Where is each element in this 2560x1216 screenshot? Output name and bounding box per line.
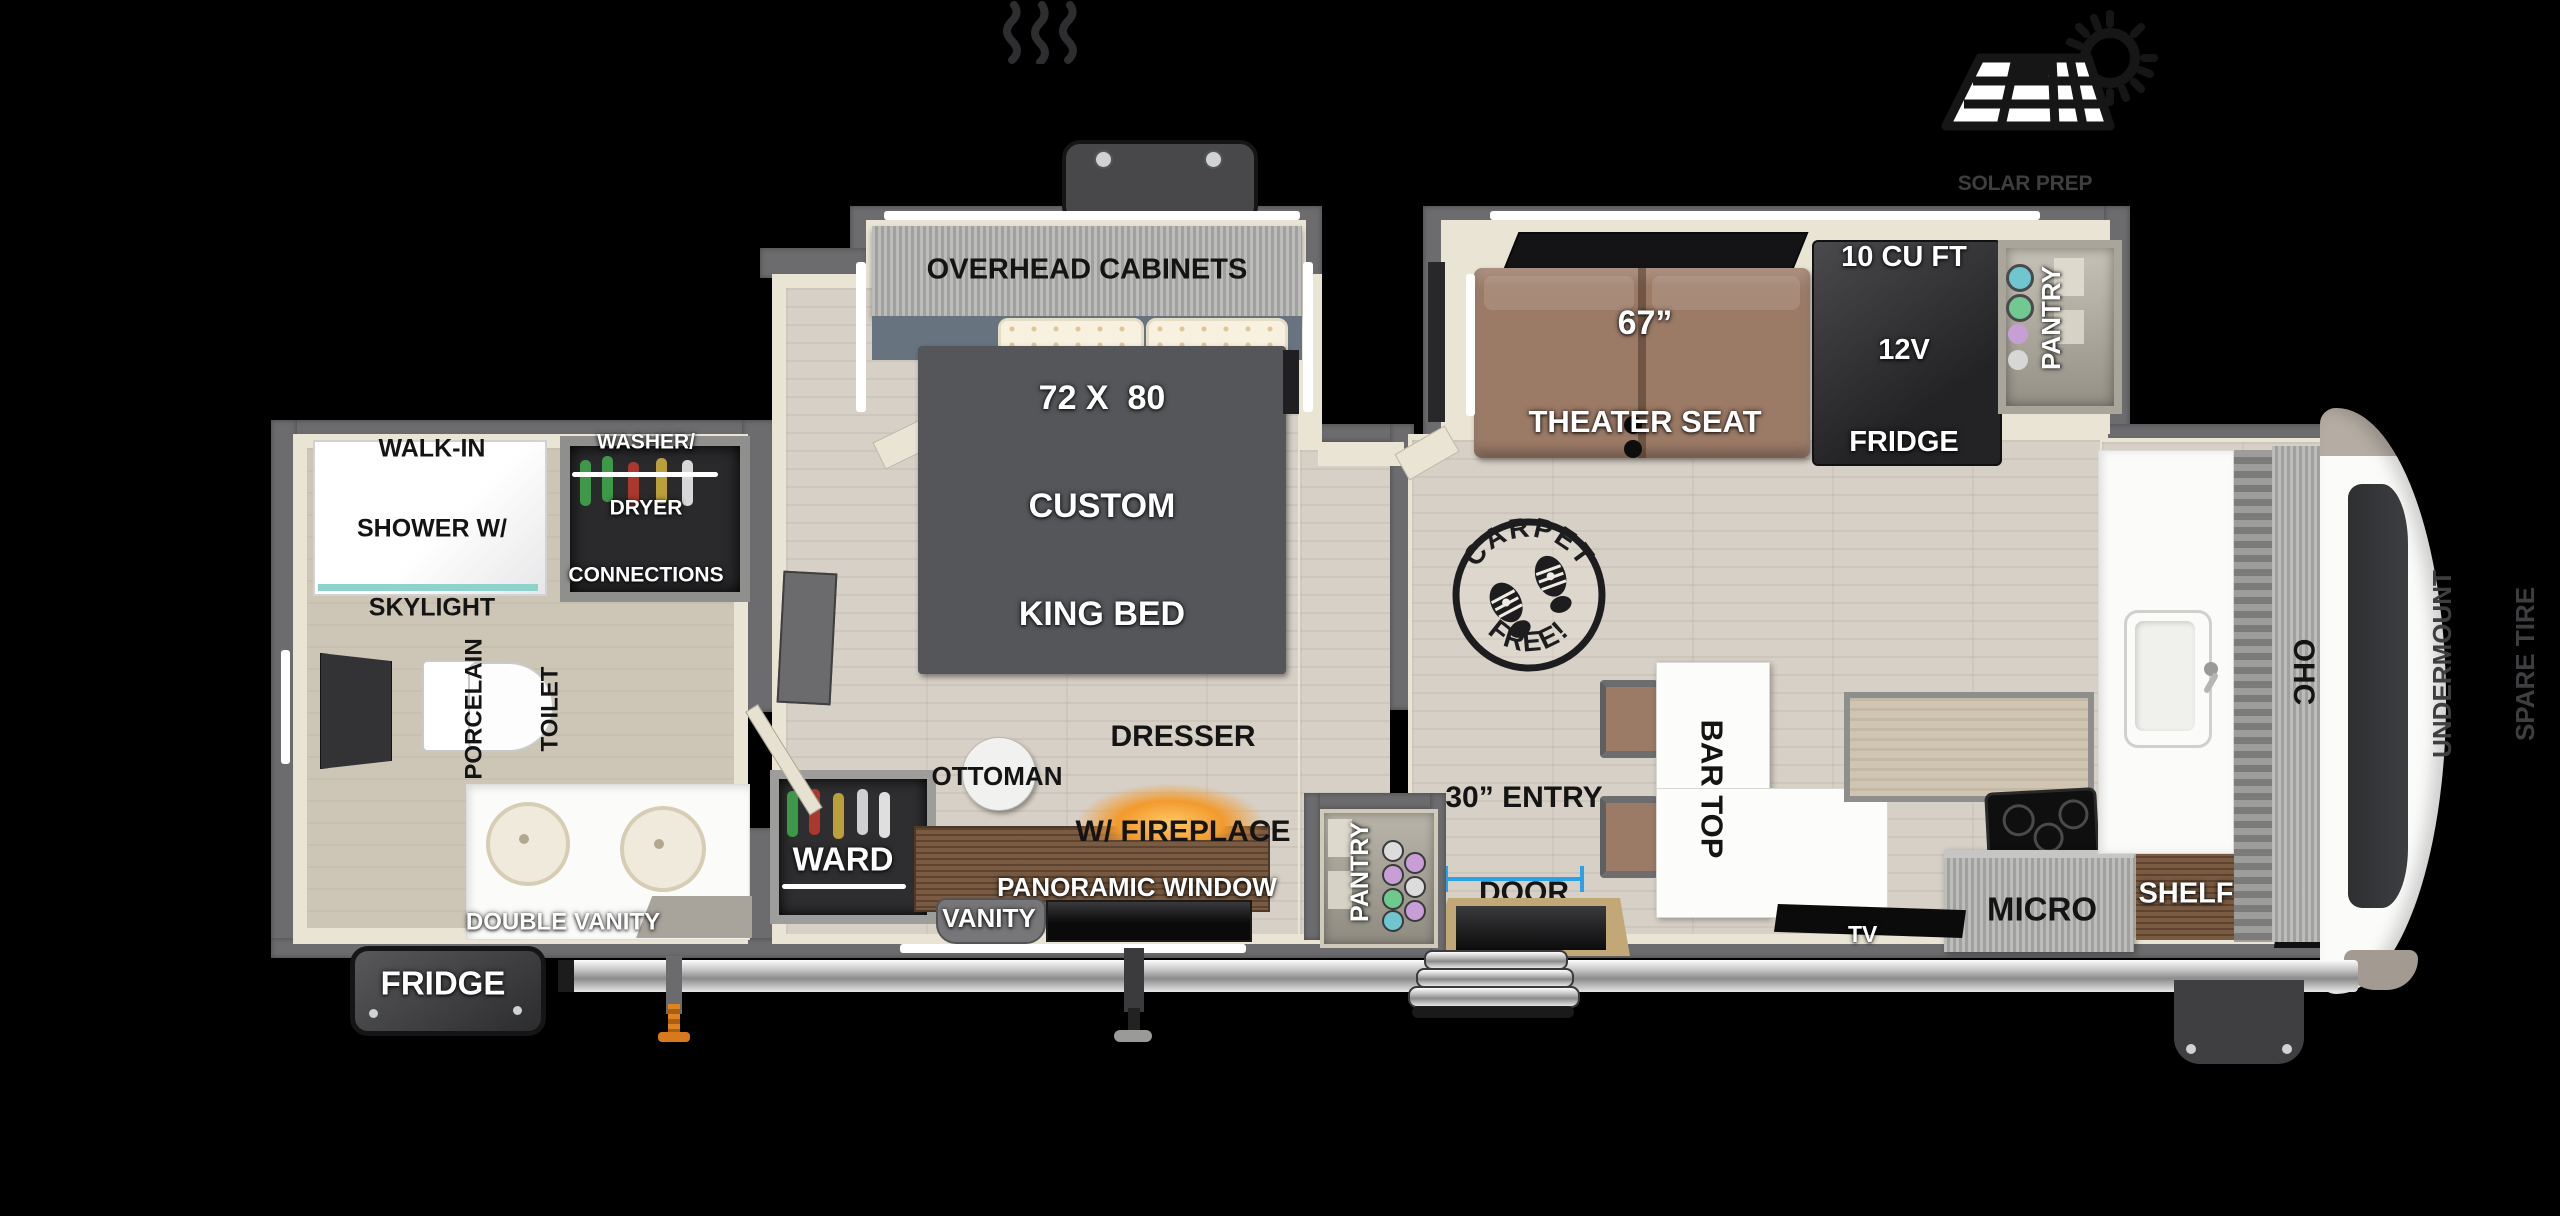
theater-label-line: 67” bbox=[1528, 305, 1761, 341]
kitchen-sink bbox=[2124, 610, 2212, 748]
landing-leg bbox=[668, 1004, 680, 1034]
fridge-label-line: FRIDGE bbox=[1841, 427, 1967, 458]
bar-chair bbox=[1600, 680, 1658, 758]
wall-accent bbox=[1490, 211, 2040, 220]
entry-steps bbox=[1408, 948, 1583, 1022]
pantry-can bbox=[2006, 294, 2034, 322]
pantry-slide-label: PANTRY bbox=[2038, 266, 2066, 370]
pantry-can bbox=[1404, 852, 1426, 874]
exterior-fridge-label: FRIDGE bbox=[381, 967, 506, 1002]
carpet-free-stamp: CARPET FREE! bbox=[1448, 514, 1610, 676]
sink-drain bbox=[654, 839, 664, 849]
toilet-label-line: PORCELAIN bbox=[461, 638, 486, 779]
ohc-label: OHC bbox=[2287, 639, 2319, 706]
front-cap-skirt bbox=[2174, 980, 2304, 1064]
pantry-can bbox=[2008, 324, 2028, 344]
tv-label: TV bbox=[1848, 922, 1877, 946]
pantry-can bbox=[2008, 350, 2028, 370]
pantry-can bbox=[1404, 876, 1426, 898]
pantry-can bbox=[1382, 864, 1404, 886]
fridge-label-line: 12V bbox=[1841, 335, 1967, 366]
pantry-entry-label: PANTRY bbox=[1347, 822, 1374, 922]
landing-leg-foot bbox=[658, 1032, 690, 1042]
washer-label-line: DRYER bbox=[568, 498, 723, 520]
entry-door-label-line: 30” ENTRY bbox=[1445, 781, 1602, 813]
pantry-can bbox=[1382, 840, 1404, 862]
slide-window-accent bbox=[1303, 262, 1313, 412]
vanity-label: VANITY bbox=[942, 905, 1035, 933]
theater-label-line: THEATER SEAT bbox=[1528, 406, 1761, 439]
screw-icon bbox=[1204, 150, 1223, 169]
shower-label-line: WALK-IN bbox=[357, 435, 507, 462]
sun-and-solar-panel-icon bbox=[1938, 2, 2168, 136]
pantry-entry-wall bbox=[1304, 793, 1446, 809]
bar-top-label: BAR TOP bbox=[1695, 720, 1728, 859]
double-vanity-label: DOUBLE VANITY bbox=[466, 909, 660, 934]
wall-accent bbox=[884, 211, 1300, 220]
undermount-spare-tire-label: UNDERMOUNT SPARE TIRE bbox=[2374, 570, 2560, 758]
sink-drain bbox=[519, 834, 529, 844]
entry-door-dimension-line bbox=[1444, 877, 1584, 881]
undermount-label-line: UNDERMOUNT bbox=[2429, 570, 2457, 758]
washer-label-line: CONNECTIONS bbox=[568, 565, 723, 587]
slide-window-accent bbox=[856, 262, 866, 412]
stabilizer-foot bbox=[1114, 1030, 1152, 1042]
king-bed-label-line: KING BED bbox=[1019, 596, 1185, 632]
ottoman-label: OTTOMAN bbox=[932, 763, 1063, 791]
pantry-can bbox=[1382, 910, 1404, 932]
shelf-label: SHELF bbox=[2138, 879, 2233, 910]
bar-top bbox=[1656, 788, 1888, 918]
dimension-tick bbox=[1580, 866, 1584, 892]
king-bed-label-line: CUSTOM bbox=[1019, 488, 1185, 524]
pantry-can bbox=[1382, 888, 1404, 910]
shower-label-line: SKYLIGHT bbox=[357, 594, 507, 621]
floorplan: SOLAR PREP W/ OPTIONAL 200W SOLAR PACKAG… bbox=[0, 0, 2560, 1216]
bath-tv bbox=[320, 653, 392, 769]
vanity-sink bbox=[486, 802, 570, 886]
stabilizer-leg bbox=[1124, 948, 1144, 1012]
toilet-label-line: TOILET bbox=[537, 638, 562, 779]
slide-side-window bbox=[1428, 262, 1445, 422]
kitchen-island bbox=[1844, 692, 2094, 802]
bar-chair bbox=[1600, 796, 1658, 878]
wall-mirror bbox=[777, 571, 838, 706]
pantry-entry-wall bbox=[1304, 793, 1320, 940]
slide-window-accent bbox=[1466, 274, 1475, 416]
heat-waves-icon bbox=[998, 0, 1090, 64]
wall-accent bbox=[281, 650, 290, 764]
vanity-sink bbox=[620, 806, 706, 892]
ward-label: WARD bbox=[793, 843, 894, 878]
ward-rod bbox=[782, 884, 906, 889]
undermount-label-line: SPARE TIRE bbox=[2512, 570, 2540, 758]
porcelain-toilet-label: PORCELAIN TOILET bbox=[410, 638, 614, 779]
micro-label: MICRO bbox=[1987, 893, 2097, 928]
cabinet-band bbox=[2234, 450, 2272, 942]
wall-accent bbox=[900, 944, 1240, 953]
overhead-cabinets-label: OVERHEAD CABINETS bbox=[927, 255, 1248, 286]
shower-label-line: SHOWER W/ bbox=[357, 515, 507, 542]
washer-dryer-label: WASHER/ DRYER CONNECTIONS bbox=[568, 387, 723, 632]
screw-icon bbox=[1094, 150, 1113, 169]
dresser-label-line: DRESSER bbox=[1076, 720, 1291, 752]
theater-seat-label: 67” THEATER SEAT bbox=[1528, 239, 1761, 505]
fridge-12v-label: 10 CU FT 12V FRIDGE bbox=[1841, 181, 1967, 519]
pantry-can bbox=[2006, 264, 2034, 292]
washer-label-line: WASHER/ bbox=[568, 431, 723, 453]
pantry-can bbox=[1404, 900, 1426, 922]
dresser-label-line: W/ FIREPLACE bbox=[1076, 816, 1291, 848]
walk-in-shower-label: WALK-IN SHOWER W/ SKYLIGHT bbox=[357, 382, 507, 674]
bedroom-window bbox=[1046, 900, 1252, 942]
notch-lining bbox=[1318, 442, 1404, 466]
frame-rail-end bbox=[558, 960, 574, 992]
slide-window bbox=[1283, 350, 1299, 414]
king-bed-label-line: 72 X 80 bbox=[1019, 380, 1185, 416]
fridge-label-line: 10 CU FT bbox=[1841, 242, 1967, 273]
king-bed-label: 72 X 80 CUSTOM KING BED bbox=[1019, 308, 1185, 704]
